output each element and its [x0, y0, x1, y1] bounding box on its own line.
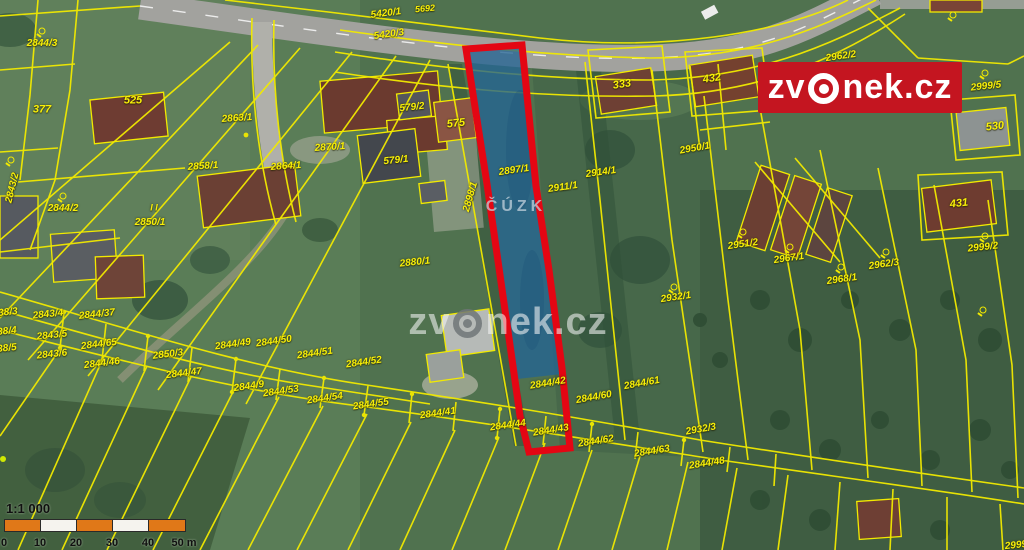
watermark-text-right: nek.cz — [485, 301, 607, 344]
zvonek-logo: zvnek.cz — [758, 62, 962, 113]
map-scale-ratio: 1:1 000 — [6, 501, 50, 516]
logo-bullseye-icon — [808, 73, 839, 104]
scale-tick-label: 50 m — [171, 537, 196, 549]
scale-tick-label: 20 — [70, 537, 82, 549]
logo-text-left: zv — [768, 68, 806, 107]
scale-tick-label: 0 — [1, 537, 7, 549]
scale-tick-label: 40 — [142, 537, 154, 549]
scale-bar-segment — [5, 520, 41, 531]
watermark-cuzk: ČÚZK — [486, 198, 546, 216]
logo-text-right: nek.cz — [842, 68, 952, 107]
watermark-zvonek: zvnek.cz — [398, 296, 618, 348]
scale-bar-segment — [41, 520, 77, 531]
scale-bar-segment — [77, 520, 113, 531]
scale-tick-labels: 01020304050 m — [0, 537, 240, 550]
watermark-bullseye-icon — [453, 309, 482, 338]
scale-bar-segment — [149, 520, 185, 531]
cadastral-map-canvas[interactable]: zvnek.cz ČÚZK 56925420/15420/32844/33775… — [0, 0, 1024, 550]
scale-bar-segment — [113, 520, 149, 531]
watermark-text-left: zv — [408, 301, 450, 344]
scale-tick-label: 30 — [106, 537, 118, 549]
scale-tick-label: 10 — [34, 537, 46, 549]
scale-bar — [4, 519, 186, 532]
